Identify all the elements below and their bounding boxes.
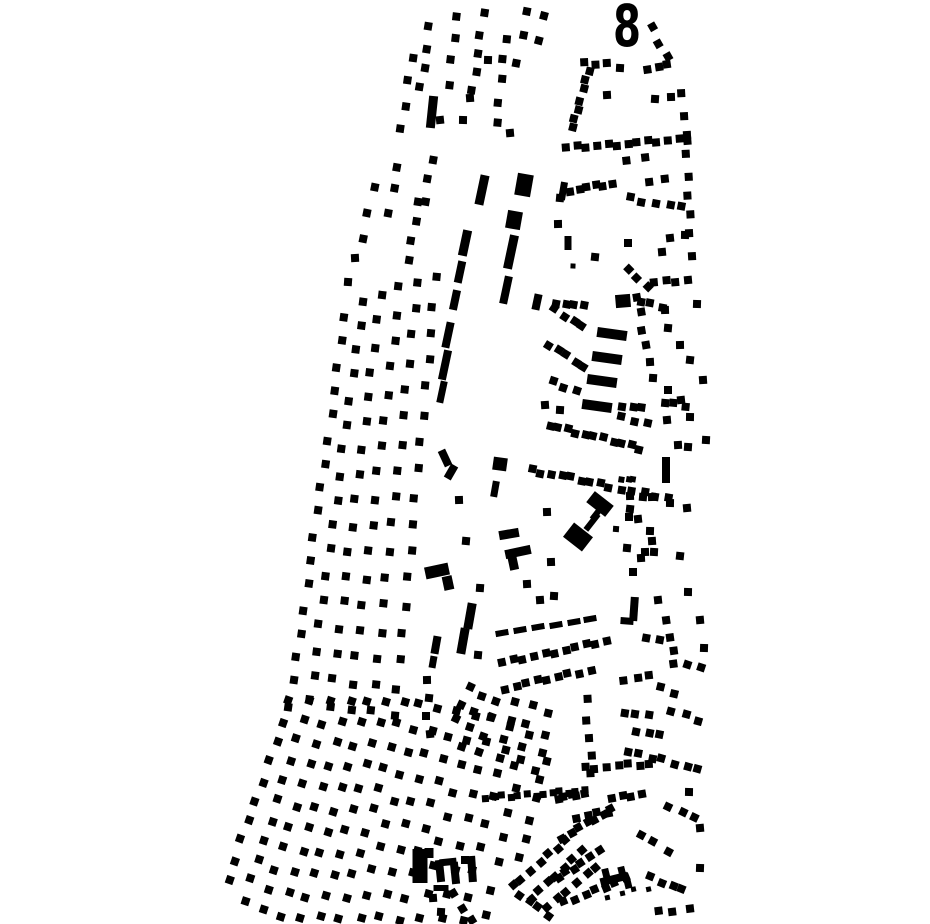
building bbox=[632, 138, 641, 147]
building bbox=[449, 289, 461, 310]
building bbox=[524, 790, 531, 797]
building bbox=[641, 153, 650, 162]
building bbox=[348, 741, 358, 751]
building bbox=[338, 782, 348, 792]
building bbox=[347, 696, 357, 706]
building bbox=[408, 725, 418, 735]
building bbox=[562, 646, 571, 655]
building bbox=[484, 56, 492, 64]
building bbox=[330, 386, 339, 395]
building bbox=[513, 682, 522, 691]
building bbox=[658, 248, 667, 257]
building bbox=[603, 59, 611, 67]
building bbox=[350, 494, 359, 503]
building bbox=[457, 760, 467, 770]
building bbox=[392, 311, 401, 320]
building bbox=[498, 74, 507, 83]
building bbox=[647, 836, 658, 847]
building bbox=[509, 654, 518, 663]
building bbox=[348, 523, 357, 532]
building bbox=[565, 236, 572, 250]
building bbox=[524, 730, 534, 740]
building bbox=[547, 558, 555, 566]
building bbox=[499, 275, 513, 304]
building bbox=[667, 93, 675, 101]
building bbox=[269, 865, 279, 875]
building bbox=[413, 278, 422, 287]
building bbox=[343, 762, 353, 772]
building bbox=[580, 75, 590, 85]
building bbox=[362, 417, 371, 426]
building bbox=[514, 890, 525, 901]
building bbox=[570, 895, 580, 905]
building bbox=[371, 344, 380, 353]
building bbox=[436, 116, 445, 125]
building bbox=[525, 816, 535, 826]
building bbox=[327, 544, 336, 553]
building bbox=[474, 747, 484, 757]
building bbox=[392, 163, 401, 172]
building bbox=[676, 552, 685, 561]
building bbox=[439, 754, 449, 764]
building bbox=[350, 651, 359, 660]
building bbox=[574, 96, 584, 106]
building bbox=[369, 803, 379, 813]
building bbox=[244, 815, 254, 825]
building bbox=[429, 155, 438, 164]
building bbox=[335, 625, 344, 634]
building bbox=[535, 469, 544, 478]
building bbox=[604, 809, 613, 818]
building bbox=[677, 202, 686, 211]
building bbox=[660, 174, 669, 183]
building bbox=[506, 129, 515, 138]
building bbox=[387, 867, 397, 877]
building bbox=[626, 505, 635, 514]
building bbox=[594, 845, 605, 856]
building bbox=[654, 596, 663, 605]
building bbox=[623, 264, 634, 275]
building bbox=[413, 698, 423, 708]
building bbox=[502, 35, 511, 44]
building bbox=[463, 893, 473, 903]
building bbox=[451, 713, 462, 724]
building bbox=[549, 621, 563, 629]
building bbox=[582, 889, 592, 899]
building bbox=[596, 478, 605, 487]
building bbox=[443, 812, 453, 822]
building bbox=[596, 327, 627, 341]
building bbox=[344, 278, 353, 287]
building bbox=[465, 722, 475, 732]
building bbox=[686, 210, 694, 218]
building bbox=[531, 766, 541, 776]
building bbox=[457, 903, 468, 914]
building bbox=[314, 506, 323, 515]
building bbox=[585, 734, 593, 742]
building bbox=[295, 913, 305, 923]
building bbox=[618, 476, 625, 483]
building bbox=[387, 742, 397, 752]
building bbox=[391, 685, 400, 694]
building bbox=[398, 441, 407, 450]
building bbox=[521, 719, 531, 729]
building bbox=[396, 845, 406, 855]
building bbox=[401, 102, 410, 111]
building bbox=[700, 644, 708, 652]
building bbox=[384, 391, 393, 400]
building bbox=[323, 761, 333, 771]
building bbox=[340, 825, 350, 835]
building bbox=[587, 666, 596, 675]
building bbox=[477, 691, 487, 701]
building bbox=[367, 864, 377, 874]
building bbox=[370, 182, 379, 191]
building bbox=[649, 278, 658, 287]
building bbox=[542, 648, 551, 657]
building bbox=[581, 399, 612, 413]
building bbox=[297, 778, 307, 788]
building bbox=[567, 618, 581, 626]
building bbox=[407, 329, 416, 338]
building bbox=[404, 747, 414, 757]
building bbox=[426, 798, 436, 808]
building bbox=[637, 326, 646, 335]
building bbox=[343, 421, 352, 430]
building bbox=[541, 401, 550, 410]
building bbox=[664, 136, 673, 145]
building bbox=[409, 494, 418, 503]
buildings-layer bbox=[225, 7, 710, 924]
building bbox=[423, 676, 431, 684]
building bbox=[664, 386, 672, 394]
building bbox=[278, 841, 288, 851]
building bbox=[613, 526, 619, 532]
building bbox=[321, 891, 331, 901]
building bbox=[536, 857, 547, 868]
building bbox=[499, 735, 509, 745]
building bbox=[569, 300, 578, 309]
building bbox=[615, 761, 623, 769]
building bbox=[584, 811, 593, 820]
building bbox=[337, 444, 346, 453]
building bbox=[615, 294, 631, 308]
building bbox=[684, 173, 692, 181]
building bbox=[289, 675, 298, 684]
building bbox=[360, 828, 370, 838]
building bbox=[692, 764, 702, 774]
building bbox=[365, 368, 374, 377]
building bbox=[427, 303, 436, 312]
building bbox=[421, 824, 431, 834]
building bbox=[414, 464, 423, 473]
building bbox=[426, 355, 435, 364]
building bbox=[497, 658, 506, 667]
building bbox=[624, 239, 632, 247]
building bbox=[323, 437, 332, 446]
building bbox=[393, 466, 402, 475]
building bbox=[662, 616, 671, 625]
building bbox=[531, 623, 545, 631]
building bbox=[514, 853, 524, 863]
building bbox=[467, 86, 476, 95]
building bbox=[245, 873, 255, 883]
building bbox=[682, 709, 692, 719]
building bbox=[664, 324, 673, 333]
building bbox=[603, 483, 612, 492]
building bbox=[495, 753, 505, 763]
building bbox=[534, 36, 544, 46]
building bbox=[420, 63, 429, 72]
building bbox=[373, 783, 383, 793]
building bbox=[607, 794, 616, 803]
building bbox=[339, 313, 348, 322]
building bbox=[543, 340, 554, 351]
building bbox=[602, 636, 611, 645]
building bbox=[521, 678, 530, 687]
building bbox=[676, 341, 684, 349]
building bbox=[347, 869, 357, 879]
building bbox=[424, 22, 433, 31]
building bbox=[384, 209, 393, 218]
building bbox=[677, 396, 686, 405]
building bbox=[426, 96, 438, 129]
building bbox=[422, 712, 430, 720]
building bbox=[522, 7, 531, 16]
building bbox=[451, 34, 460, 43]
building bbox=[523, 580, 531, 588]
building bbox=[583, 695, 591, 703]
building bbox=[571, 877, 582, 888]
building bbox=[306, 759, 316, 769]
building bbox=[491, 696, 501, 706]
building bbox=[377, 441, 386, 450]
building bbox=[349, 680, 358, 689]
building bbox=[415, 82, 424, 91]
building bbox=[599, 432, 609, 442]
building bbox=[641, 340, 650, 349]
building bbox=[392, 492, 401, 501]
building bbox=[582, 716, 590, 724]
building bbox=[511, 58, 520, 67]
building bbox=[357, 913, 367, 923]
building bbox=[400, 385, 409, 394]
building bbox=[604, 895, 610, 901]
building bbox=[362, 891, 372, 901]
building bbox=[541, 902, 552, 913]
building bbox=[316, 911, 326, 921]
building bbox=[461, 856, 469, 864]
building bbox=[299, 606, 308, 615]
building bbox=[500, 685, 509, 694]
building bbox=[566, 853, 577, 864]
building bbox=[386, 361, 395, 370]
building bbox=[434, 885, 449, 891]
building bbox=[434, 776, 444, 786]
building bbox=[531, 293, 542, 310]
building bbox=[455, 841, 465, 851]
building bbox=[408, 546, 417, 555]
building bbox=[503, 808, 513, 818]
building bbox=[371, 496, 380, 505]
building bbox=[321, 572, 330, 581]
building bbox=[290, 867, 300, 877]
building bbox=[390, 184, 399, 193]
building bbox=[378, 629, 387, 638]
building bbox=[380, 573, 389, 582]
building bbox=[620, 890, 626, 896]
building bbox=[540, 730, 550, 740]
building bbox=[589, 884, 599, 894]
building bbox=[637, 789, 646, 798]
building bbox=[645, 760, 653, 768]
building bbox=[542, 675, 551, 684]
building bbox=[300, 893, 310, 903]
building bbox=[513, 626, 527, 634]
building bbox=[403, 572, 412, 581]
building bbox=[402, 603, 411, 612]
building bbox=[381, 819, 391, 829]
building bbox=[550, 649, 559, 658]
building bbox=[385, 548, 394, 557]
building bbox=[573, 141, 582, 150]
building bbox=[674, 441, 682, 449]
building bbox=[498, 528, 519, 540]
building bbox=[434, 836, 444, 846]
building bbox=[448, 788, 458, 798]
building bbox=[399, 894, 409, 904]
map-figure: 8 bbox=[0, 0, 930, 924]
building bbox=[684, 443, 693, 452]
building bbox=[426, 730, 435, 739]
building bbox=[333, 737, 343, 747]
building bbox=[442, 575, 455, 591]
building bbox=[342, 893, 352, 903]
building bbox=[381, 697, 391, 707]
building bbox=[579, 84, 589, 94]
building bbox=[566, 471, 575, 480]
building bbox=[656, 682, 666, 692]
building bbox=[682, 150, 690, 158]
building bbox=[652, 138, 661, 147]
building bbox=[645, 298, 654, 307]
building bbox=[644, 136, 653, 145]
building bbox=[394, 770, 404, 780]
building bbox=[666, 200, 675, 209]
building bbox=[663, 416, 672, 425]
building bbox=[273, 737, 283, 747]
building bbox=[372, 680, 381, 689]
district-number-label: 8 bbox=[613, 0, 641, 60]
building bbox=[438, 449, 452, 468]
building bbox=[550, 592, 558, 600]
building bbox=[425, 694, 434, 703]
building bbox=[259, 778, 269, 788]
building bbox=[481, 910, 491, 920]
building bbox=[685, 788, 693, 796]
building bbox=[406, 236, 415, 245]
building bbox=[466, 915, 477, 924]
building bbox=[403, 76, 412, 85]
building bbox=[241, 896, 251, 906]
building bbox=[637, 403, 646, 412]
building bbox=[373, 654, 382, 663]
building bbox=[643, 418, 653, 428]
building bbox=[319, 596, 328, 605]
building bbox=[409, 53, 418, 62]
building bbox=[494, 857, 504, 867]
building bbox=[558, 383, 568, 393]
building bbox=[699, 376, 708, 385]
building bbox=[645, 710, 654, 719]
building bbox=[669, 398, 678, 407]
building bbox=[362, 208, 371, 217]
building bbox=[438, 349, 452, 380]
building bbox=[559, 311, 570, 322]
building bbox=[641, 548, 649, 556]
building bbox=[693, 716, 703, 726]
building bbox=[493, 768, 503, 778]
building bbox=[636, 830, 647, 841]
building bbox=[547, 470, 556, 479]
building bbox=[311, 739, 321, 749]
building bbox=[379, 599, 388, 608]
building bbox=[396, 655, 405, 664]
building bbox=[421, 381, 430, 390]
building bbox=[330, 870, 340, 880]
building bbox=[511, 783, 521, 793]
building bbox=[651, 95, 660, 104]
building bbox=[661, 399, 670, 408]
building bbox=[562, 143, 571, 152]
building bbox=[536, 596, 545, 605]
building bbox=[554, 220, 562, 228]
building bbox=[648, 493, 656, 501]
building bbox=[309, 868, 319, 878]
building bbox=[670, 760, 680, 770]
building bbox=[399, 411, 408, 420]
building bbox=[379, 416, 388, 425]
building bbox=[689, 812, 700, 823]
building bbox=[358, 234, 367, 243]
building bbox=[580, 58, 588, 66]
building bbox=[297, 629, 306, 638]
building bbox=[593, 142, 602, 151]
building bbox=[639, 493, 648, 502]
building bbox=[696, 662, 706, 672]
building bbox=[397, 629, 406, 638]
building bbox=[657, 878, 667, 888]
building bbox=[570, 263, 575, 268]
building bbox=[486, 886, 496, 896]
building bbox=[505, 210, 523, 230]
building bbox=[446, 55, 455, 64]
building bbox=[412, 304, 421, 313]
building bbox=[357, 321, 366, 330]
building bbox=[286, 756, 296, 766]
building bbox=[277, 775, 287, 785]
building bbox=[570, 642, 579, 651]
building bbox=[333, 649, 342, 658]
building bbox=[335, 472, 344, 481]
building bbox=[357, 445, 366, 454]
building bbox=[625, 513, 633, 521]
building bbox=[646, 886, 652, 892]
building bbox=[671, 278, 680, 287]
building bbox=[522, 834, 532, 844]
building bbox=[644, 671, 653, 680]
building bbox=[316, 720, 326, 730]
